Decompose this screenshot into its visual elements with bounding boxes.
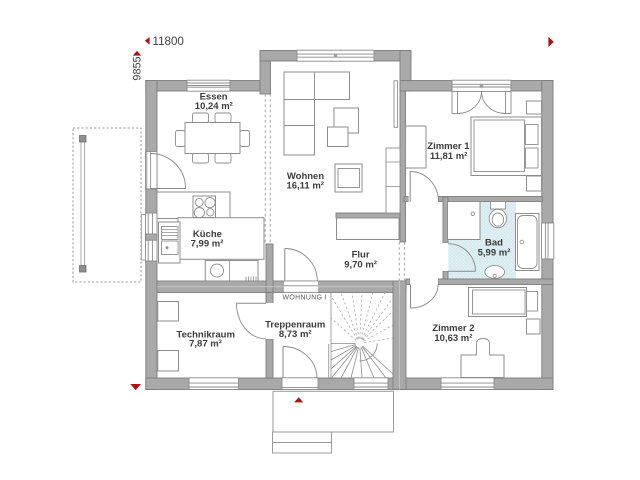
svg-text:7,99 m²: 7,99 m²	[191, 238, 224, 249]
svg-text:11,81 m²: 11,81 m²	[430, 151, 468, 162]
svg-text:9,70 m²: 9,70 m²	[344, 260, 377, 271]
svg-text:Zimmer 2: Zimmer 2	[432, 323, 474, 334]
svg-text:10,63 m²: 10,63 m²	[434, 333, 472, 344]
svg-text:WOHNUNG I: WOHNUNG I	[283, 295, 328, 302]
svg-text:11800: 11800	[153, 35, 184, 48]
svg-text:8,73 m²: 8,73 m²	[279, 329, 312, 340]
svg-text:16,11 m²: 16,11 m²	[286, 180, 324, 191]
svg-text:9855: 9855	[131, 56, 143, 80]
svg-text:7,87 m²: 7,87 m²	[189, 338, 222, 349]
svg-text:10,24 m²: 10,24 m²	[195, 101, 233, 112]
svg-text:5,99 m²: 5,99 m²	[478, 248, 511, 259]
